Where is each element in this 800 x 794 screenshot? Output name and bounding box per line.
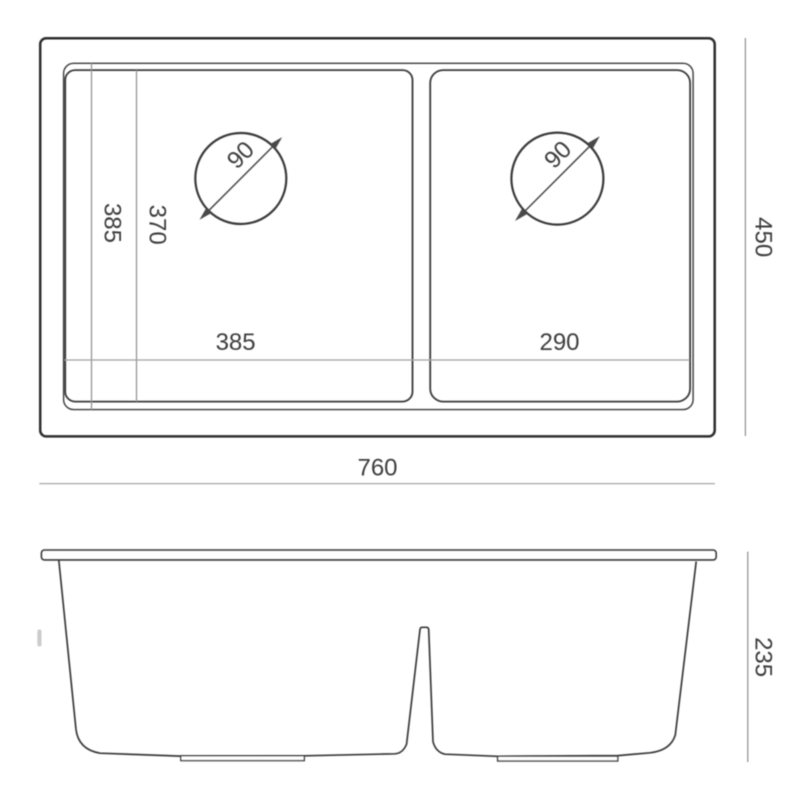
svg-text:385: 385 — [216, 329, 256, 356]
svg-text:385: 385 — [98, 203, 125, 243]
svg-text:290: 290 — [539, 329, 579, 356]
svg-text:370: 370 — [143, 205, 170, 245]
svg-text:235: 235 — [749, 637, 776, 677]
svg-text:760: 760 — [357, 454, 397, 481]
svg-text:450: 450 — [749, 217, 776, 257]
